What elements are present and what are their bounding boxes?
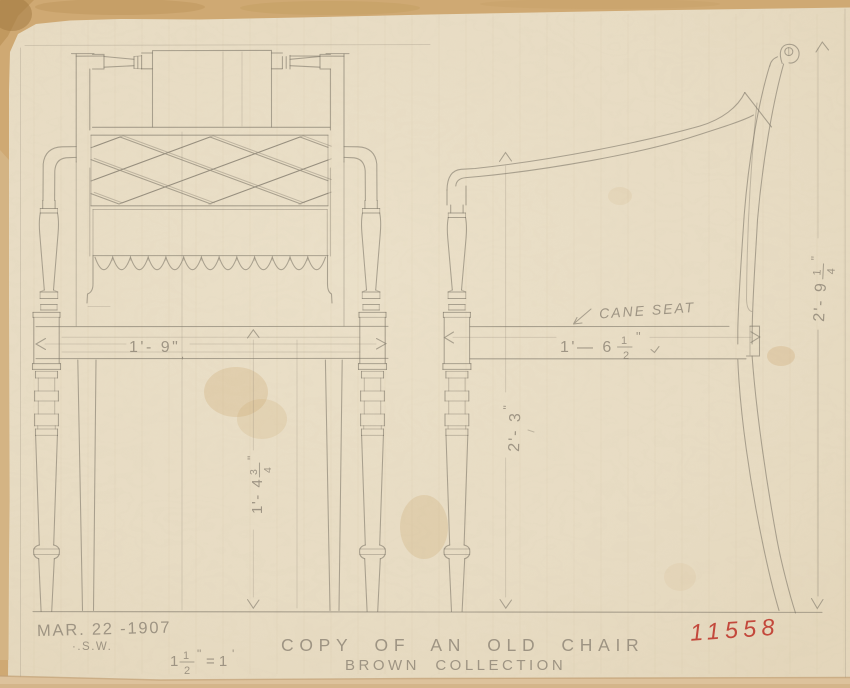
svg-text:": " <box>500 405 514 410</box>
svg-text:1: 1 <box>621 335 627 347</box>
svg-text:4: 4 <box>826 268 838 275</box>
svg-text:1: 1 <box>183 650 189 662</box>
svg-text:2: 2 <box>184 665 190 677</box>
svg-text:2: 2 <box>623 350 629 362</box>
svg-text:1'— 6: 1'— 6 <box>560 339 614 356</box>
svg-text:3: 3 <box>248 469 260 475</box>
svg-text:": " <box>636 329 641 344</box>
svg-text:BROWN COLLECTION: BROWN COLLECTION <box>345 657 566 674</box>
svg-text:": " <box>197 647 201 661</box>
svg-text:·.S.W.: ·.S.W. <box>72 641 112 653</box>
svg-text:COPY OF AN OLD CHAIR: COPY OF AN OLD CHAIR <box>281 635 644 655</box>
svg-text:": " <box>245 456 259 460</box>
svg-text:': ' <box>232 647 234 661</box>
svg-text:= 1: = 1 <box>206 653 227 670</box>
svg-text:,: , <box>181 349 184 361</box>
svg-text:1: 1 <box>811 269 823 276</box>
svg-text:4: 4 <box>262 467 274 473</box>
svg-text:MAR. 22 -1907: MAR. 22 -1907 <box>37 619 172 641</box>
svg-text:": " <box>808 256 822 261</box>
svg-text:2'- 3: 2'- 3 <box>506 411 524 452</box>
svg-text:1'- 4: 1'- 4 <box>249 478 266 514</box>
svg-text:2'- 9: 2'- 9 <box>811 281 830 322</box>
svg-text:1'- 9": 1'- 9" <box>129 339 180 356</box>
svg-text:1: 1 <box>170 653 178 670</box>
